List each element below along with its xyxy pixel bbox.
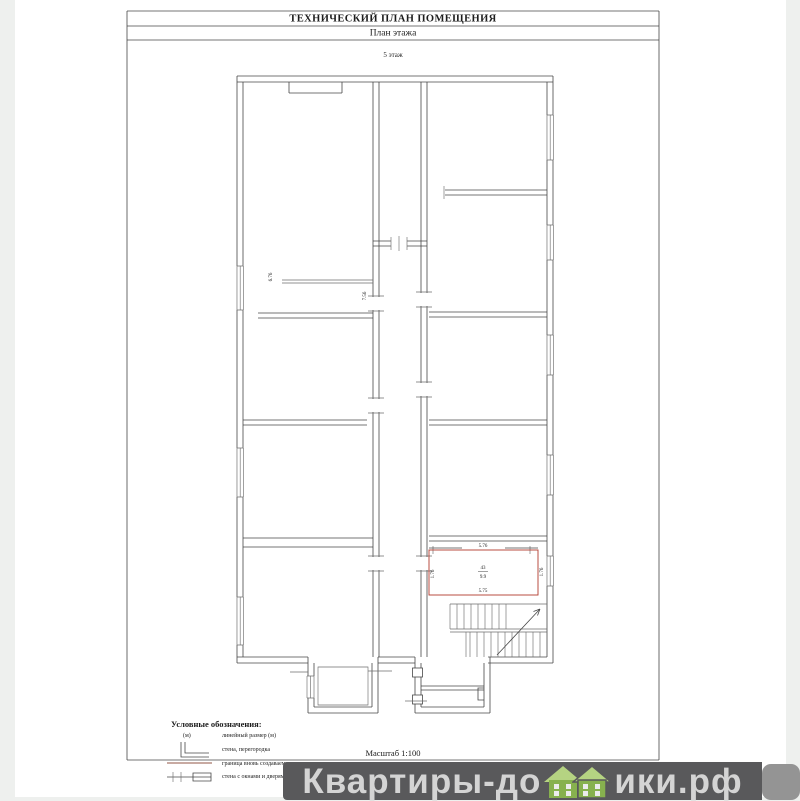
dim-red-top: 5.76 [479, 544, 488, 549]
room-number: 43 [481, 566, 487, 571]
legend-symbol-wall-corner [181, 742, 209, 757]
floor-label: 5 этаж [383, 51, 403, 59]
dim-red-bottom: 5.75 [479, 589, 488, 594]
staircase [450, 604, 547, 657]
legend-item-label: стена с окнами и дверями [222, 774, 289, 780]
scale-label: Масштаб 1:100 [365, 748, 420, 758]
legend-symbol-linear-dimension: (м) [183, 732, 191, 739]
watermark-houses [543, 765, 612, 798]
legend-item-label: стена, перегородка [222, 747, 270, 753]
watermark-text-left: Квартиры-до [302, 764, 541, 799]
watermark: Квартиры-до ики.рф [283, 762, 762, 800]
room-area: 9.9 [480, 575, 487, 580]
dim-red-left: 1.76 [431, 569, 436, 578]
dimension-labels: 6.76 7.56 [269, 272, 368, 300]
floor-plan-walls [237, 76, 553, 663]
watermark-text-right: ики.рф [614, 764, 742, 799]
document-frame [127, 11, 659, 760]
dim-room-right: 7.56 [363, 291, 368, 300]
dim-red-right: 1.76 [540, 567, 545, 576]
legend-item-label: линейный размер (м) [222, 732, 276, 739]
technical-plan-drawing: ТЕХНИЧЕСКИЙ ПЛАН ПОМЕЩЕНИЯ План этажа 5 … [0, 0, 800, 800]
window-symbols [237, 115, 554, 645]
legend-symbol-wall-with-openings [167, 772, 211, 782]
bottom-right-annex [405, 657, 490, 713]
page-subtitle: План этажа [370, 29, 417, 39]
bottom-left-annex [290, 657, 392, 713]
door-openings [368, 186, 530, 571]
house-icon [572, 765, 612, 798]
watermark-right-cap [762, 764, 800, 800]
dim-room-left: 6.76 [269, 272, 274, 281]
new-premises-outline: 5.76 5.75 1.76 1.76 43 9.9 [429, 544, 545, 595]
legend-title: Условные обозначения: [171, 719, 262, 729]
page-title: ТЕХНИЧЕСКИЙ ПЛАН ПОМЕЩЕНИЯ [289, 13, 496, 25]
